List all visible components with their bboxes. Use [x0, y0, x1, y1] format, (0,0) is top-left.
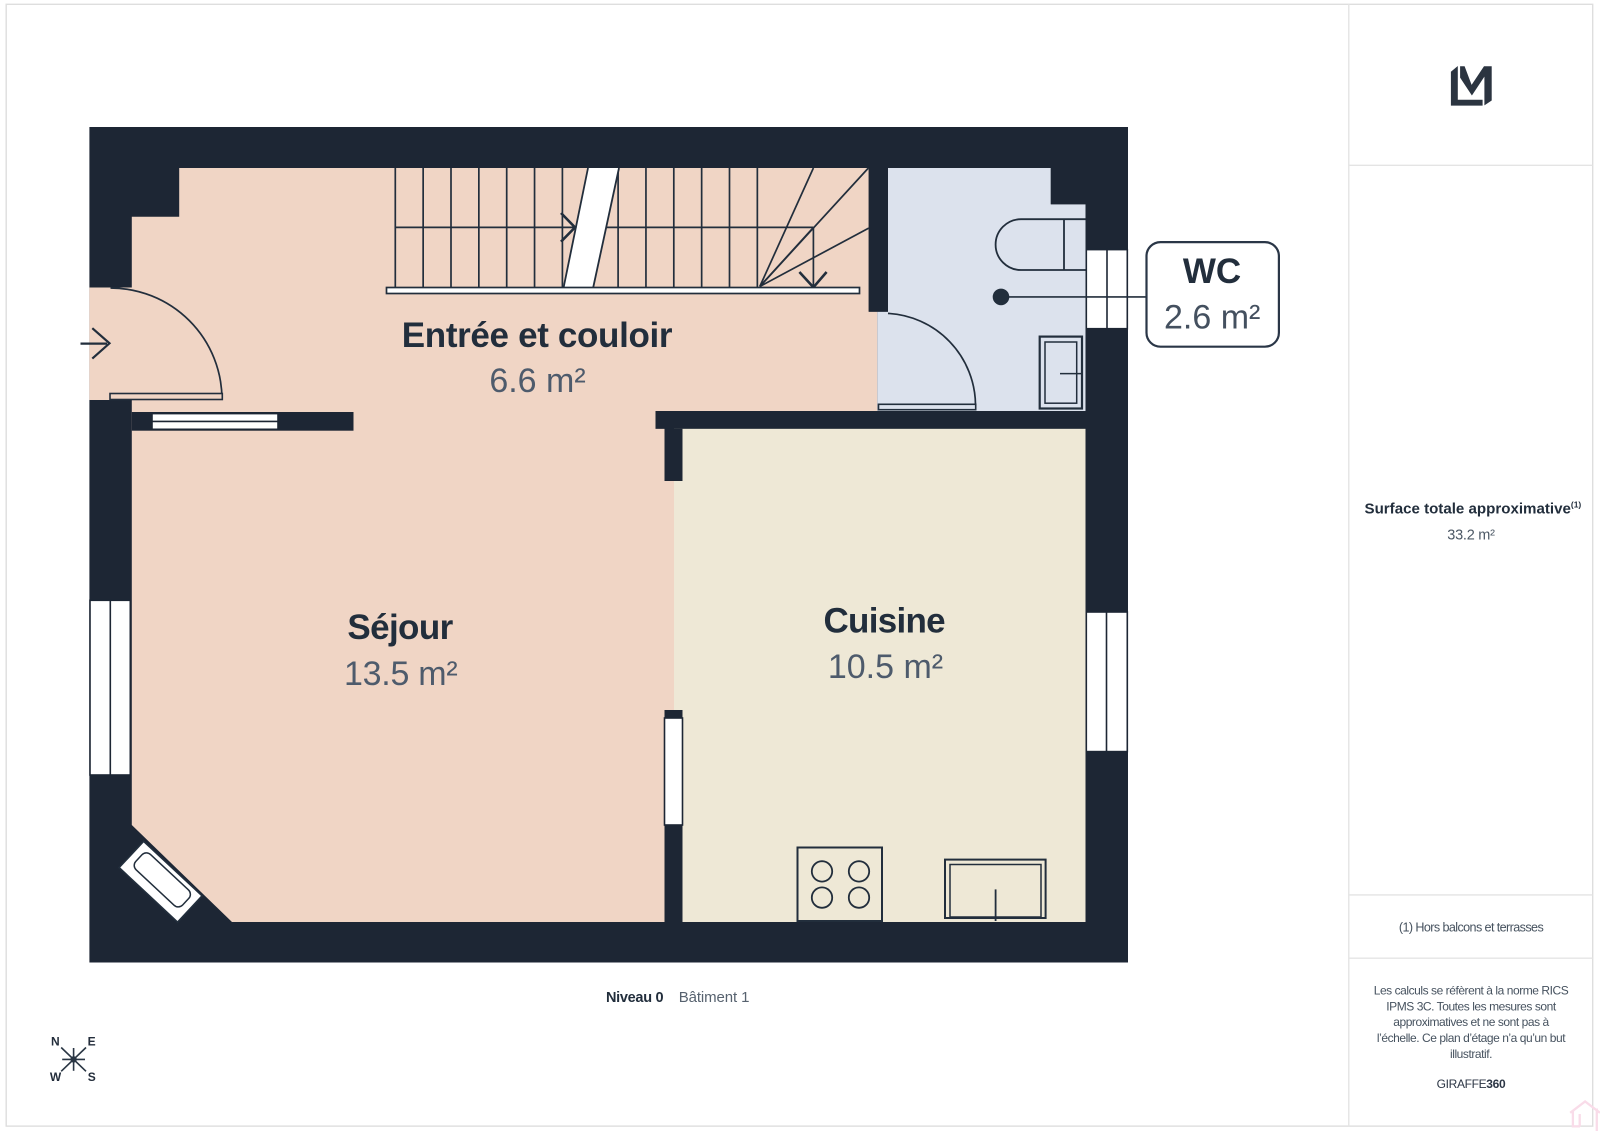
svg-text:2.6 m²: 2.6 m² [1164, 299, 1260, 337]
svg-text:Les calculs se réfèrent à la n: Les calculs se réfèrent à la norme RICS [1374, 983, 1569, 997]
svg-text:Niveau 0: Niveau 0 [606, 990, 663, 1006]
svg-text:6.6 m²: 6.6 m² [489, 362, 585, 400]
svg-text:10.5 m²: 10.5 m² [828, 648, 943, 686]
svg-text:(1) Hors balcons et terrasses: (1) Hors balcons et terrasses [1399, 920, 1544, 934]
svg-text:l’échelle. Ce plan d’étage n’a: l’échelle. Ce plan d’étage n’a qu’un but [1377, 1031, 1566, 1045]
svg-text:approximatives et ne sont pas: approximatives et ne sont pas à [1393, 1015, 1549, 1029]
svg-text:13.5 m²: 13.5 m² [344, 655, 457, 693]
svg-text:33.2 m²: 33.2 m² [1447, 527, 1495, 543]
svg-text:E: E [88, 1034, 96, 1048]
svg-text:illustratif.: illustratif. [1450, 1047, 1492, 1061]
svg-text:Cuisine: Cuisine [823, 602, 945, 641]
svg-text:GIRAFFE360: GIRAFFE360 [1437, 1077, 1506, 1091]
svg-text:N: N [51, 1034, 60, 1048]
svg-text:W: W [50, 1070, 62, 1084]
svg-text:Bâtiment 1: Bâtiment 1 [679, 989, 750, 1006]
svg-text:S: S [88, 1070, 96, 1084]
svg-text:Entrée et couloir: Entrée et couloir [402, 316, 673, 355]
svg-text:IPMS 3C. Toutes les mesures so: IPMS 3C. Toutes les mesures sont [1386, 999, 1557, 1013]
svg-text:Séjour: Séjour [347, 608, 453, 647]
svg-text:Surface totale approximative(1: Surface totale approximative(1) [1365, 499, 1582, 517]
svg-text:WC: WC [1183, 252, 1241, 291]
